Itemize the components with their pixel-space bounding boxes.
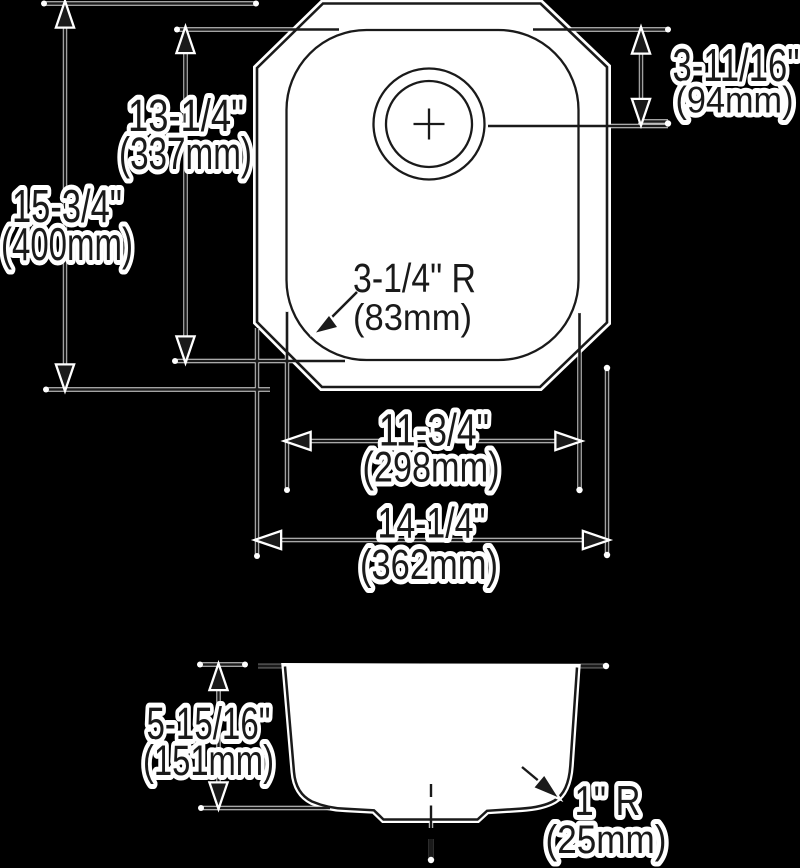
svg-text:(94mm): (94mm) [676, 80, 794, 121]
svg-text:(337mm): (337mm) [119, 128, 252, 179]
svg-text:(25mm): (25mm) [546, 818, 667, 862]
svg-text:(362mm): (362mm) [360, 541, 498, 589]
svg-text:(83mm): (83mm) [353, 297, 472, 338]
svg-text:1" R: 1" R [575, 777, 641, 824]
svg-text:(400mm): (400mm) [1, 218, 133, 270]
svg-text:(151mm): (151mm) [143, 737, 274, 785]
svg-text:(298mm): (298mm) [363, 444, 500, 492]
svg-text:3-1/4" R: 3-1/4" R [353, 255, 476, 301]
